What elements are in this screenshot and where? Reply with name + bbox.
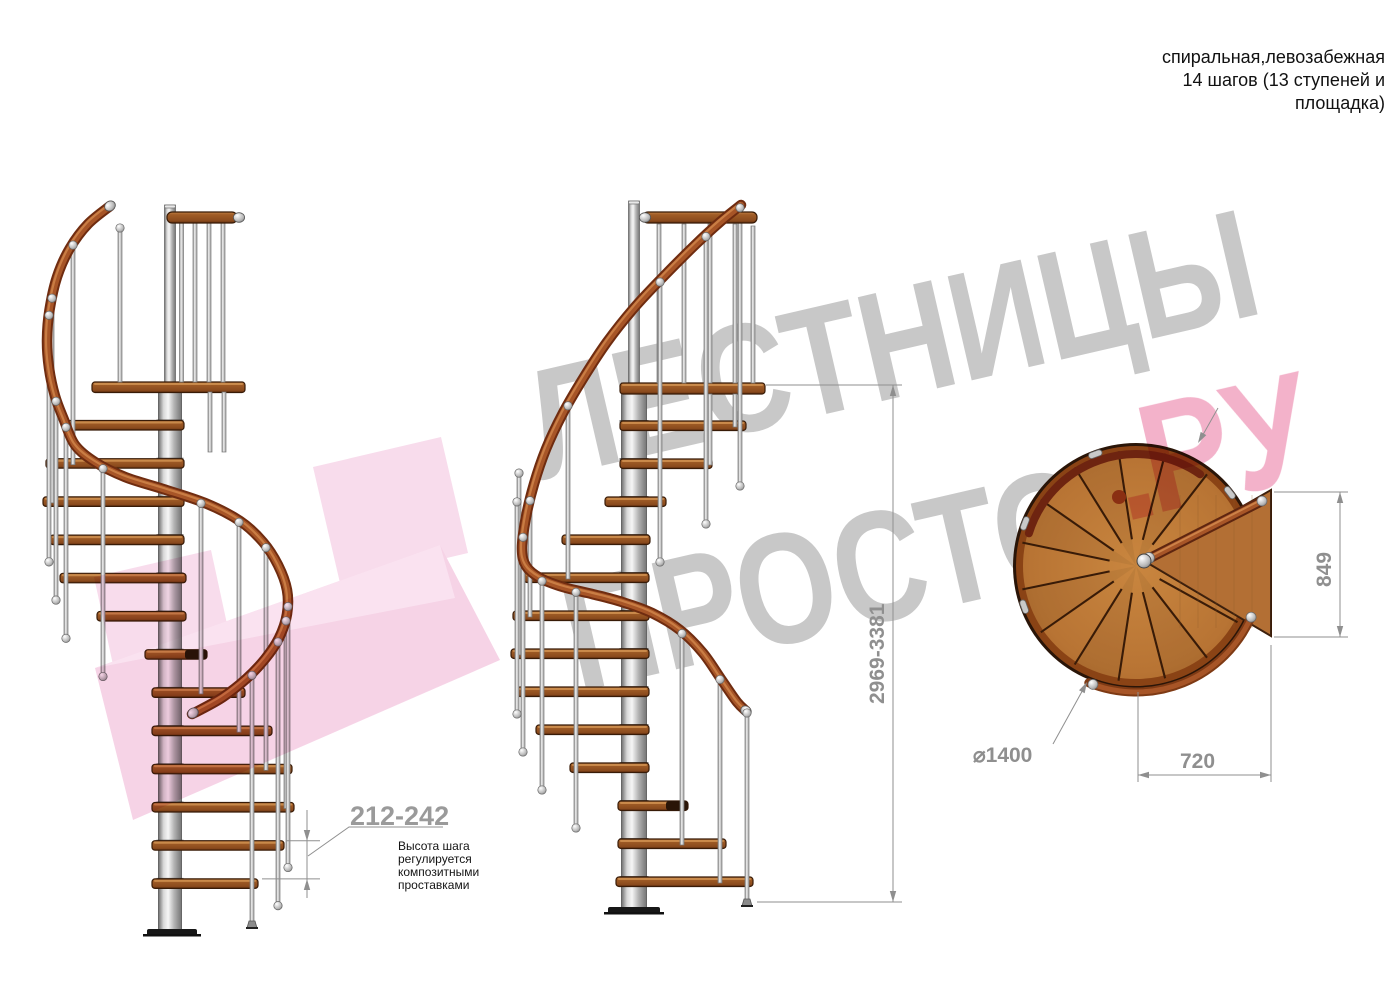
svg-text:⌀1400: ⌀1400 (973, 744, 1032, 767)
svg-text:2969-3381: 2969-3381 (866, 603, 889, 704)
svg-text:212-242: 212-242 (350, 801, 449, 831)
svg-text:849: 849 (1313, 552, 1336, 587)
svg-text:720: 720 (1180, 750, 1215, 773)
svg-text:Высота шагарегулируетсякомпози: Высота шагарегулируетсякомпозитнымипрост… (398, 839, 479, 892)
